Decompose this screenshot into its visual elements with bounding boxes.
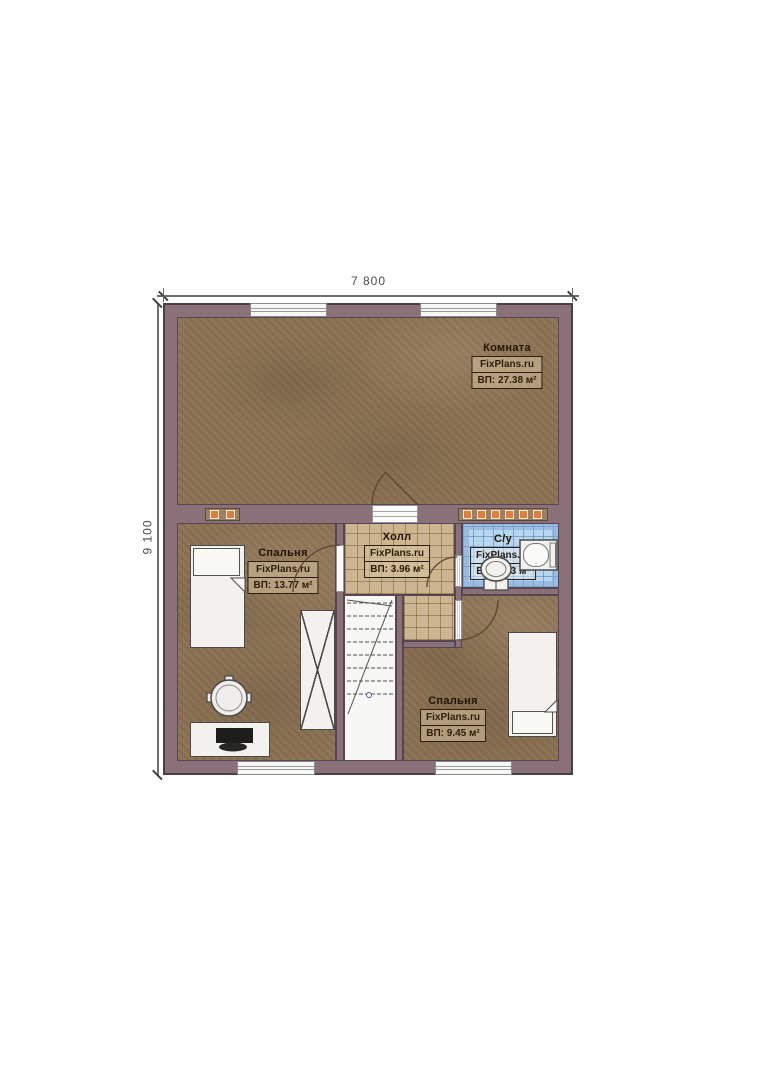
room-area: ВП: 9.45 м² (421, 725, 485, 741)
orange-marker-icon (505, 510, 514, 519)
interior-wall (396, 595, 403, 761)
marker-strip (205, 508, 240, 521)
orange-marker-icon (477, 510, 486, 519)
room-area: ВП: 2.43 м² (471, 563, 535, 579)
interior-wall (462, 588, 559, 595)
door-opening-bedroom-left (336, 545, 344, 592)
window (435, 761, 512, 775)
bed-icon (508, 632, 557, 737)
watermark: FixPlans.ru (471, 548, 535, 563)
floor-plan: Комната FixPlans.ru ВП: 27.38 м² Спальня… (163, 303, 573, 775)
room-name: Комната (483, 342, 531, 354)
orange-marker-icon (519, 510, 528, 519)
room-label-hall: Холл FixPlans.ru ВП: 3.96 м² (364, 531, 430, 578)
dimension-extension-line (572, 288, 573, 302)
room-name: Спальня (428, 695, 478, 707)
room-info-box: FixPlans.ru ВП: 2.43 м² (470, 547, 536, 580)
window (237, 761, 315, 775)
room-label-bedroom-left: Спальня FixPlans.ru ВП: 13.77 м² (247, 547, 318, 594)
desk-icon (190, 722, 270, 757)
orange-marker-icon (226, 510, 235, 519)
pillow-icon (512, 711, 553, 734)
laptop-icon (216, 728, 253, 743)
room-area: ВП: 3.96 м² (365, 561, 429, 577)
room-label-living: Комната FixPlans.ru ВП: 27.38 м² (471, 342, 542, 389)
interior-wall (403, 641, 455, 648)
room-label-bathroom: С/у FixPlans.ru ВП: 2.43 м² (470, 533, 536, 580)
orange-marker-icon (533, 510, 542, 519)
room-area: ВП: 13.77 м² (248, 577, 317, 593)
orange-marker-icon (210, 510, 219, 519)
dimension-height-line (157, 303, 159, 775)
pillow-icon (193, 548, 240, 576)
room-hall-floor-lower (403, 595, 455, 641)
room-info-box: FixPlans.ru ВП: 27.38 м² (471, 356, 542, 389)
orange-marker-icon (463, 510, 472, 519)
watermark: FixPlans.ru (248, 562, 317, 577)
floor-plan-page: 7 800 9 100 (0, 0, 763, 1080)
marker-strip (458, 508, 548, 521)
watermark: FixPlans.ru (421, 710, 485, 725)
bed-icon (190, 545, 245, 648)
orange-marker-icon (491, 510, 500, 519)
room-label-bedroom-right: Спальня FixPlans.ru ВП: 9.45 м² (420, 695, 486, 742)
door-opening-living (372, 505, 418, 523)
watermark: FixPlans.ru (472, 357, 541, 372)
door-opening-bedroom-right (455, 600, 462, 640)
stairwell-floor (344, 595, 396, 761)
watermark: FixPlans.ru (365, 546, 429, 561)
dimension-width-line (157, 295, 579, 297)
dimension-width-label: 7 800 (340, 274, 397, 288)
dimension-height-label: 9 100 (141, 509, 155, 566)
room-info-box: FixPlans.ru ВП: 13.77 м² (247, 561, 318, 594)
room-name: С/у (494, 533, 512, 545)
room-info-box: FixPlans.ru ВП: 3.96 м² (364, 545, 430, 578)
window (420, 303, 497, 317)
room-area: ВП: 27.38 м² (472, 372, 541, 388)
window (250, 303, 327, 317)
room-name: Холл (383, 531, 412, 543)
door-opening-bathroom (455, 555, 462, 587)
room-info-box: FixPlans.ru ВП: 9.45 м² (420, 709, 486, 742)
dimension-extension-line (163, 288, 164, 302)
room-name: Спальня (258, 547, 308, 559)
wardrobe-icon (300, 610, 335, 730)
